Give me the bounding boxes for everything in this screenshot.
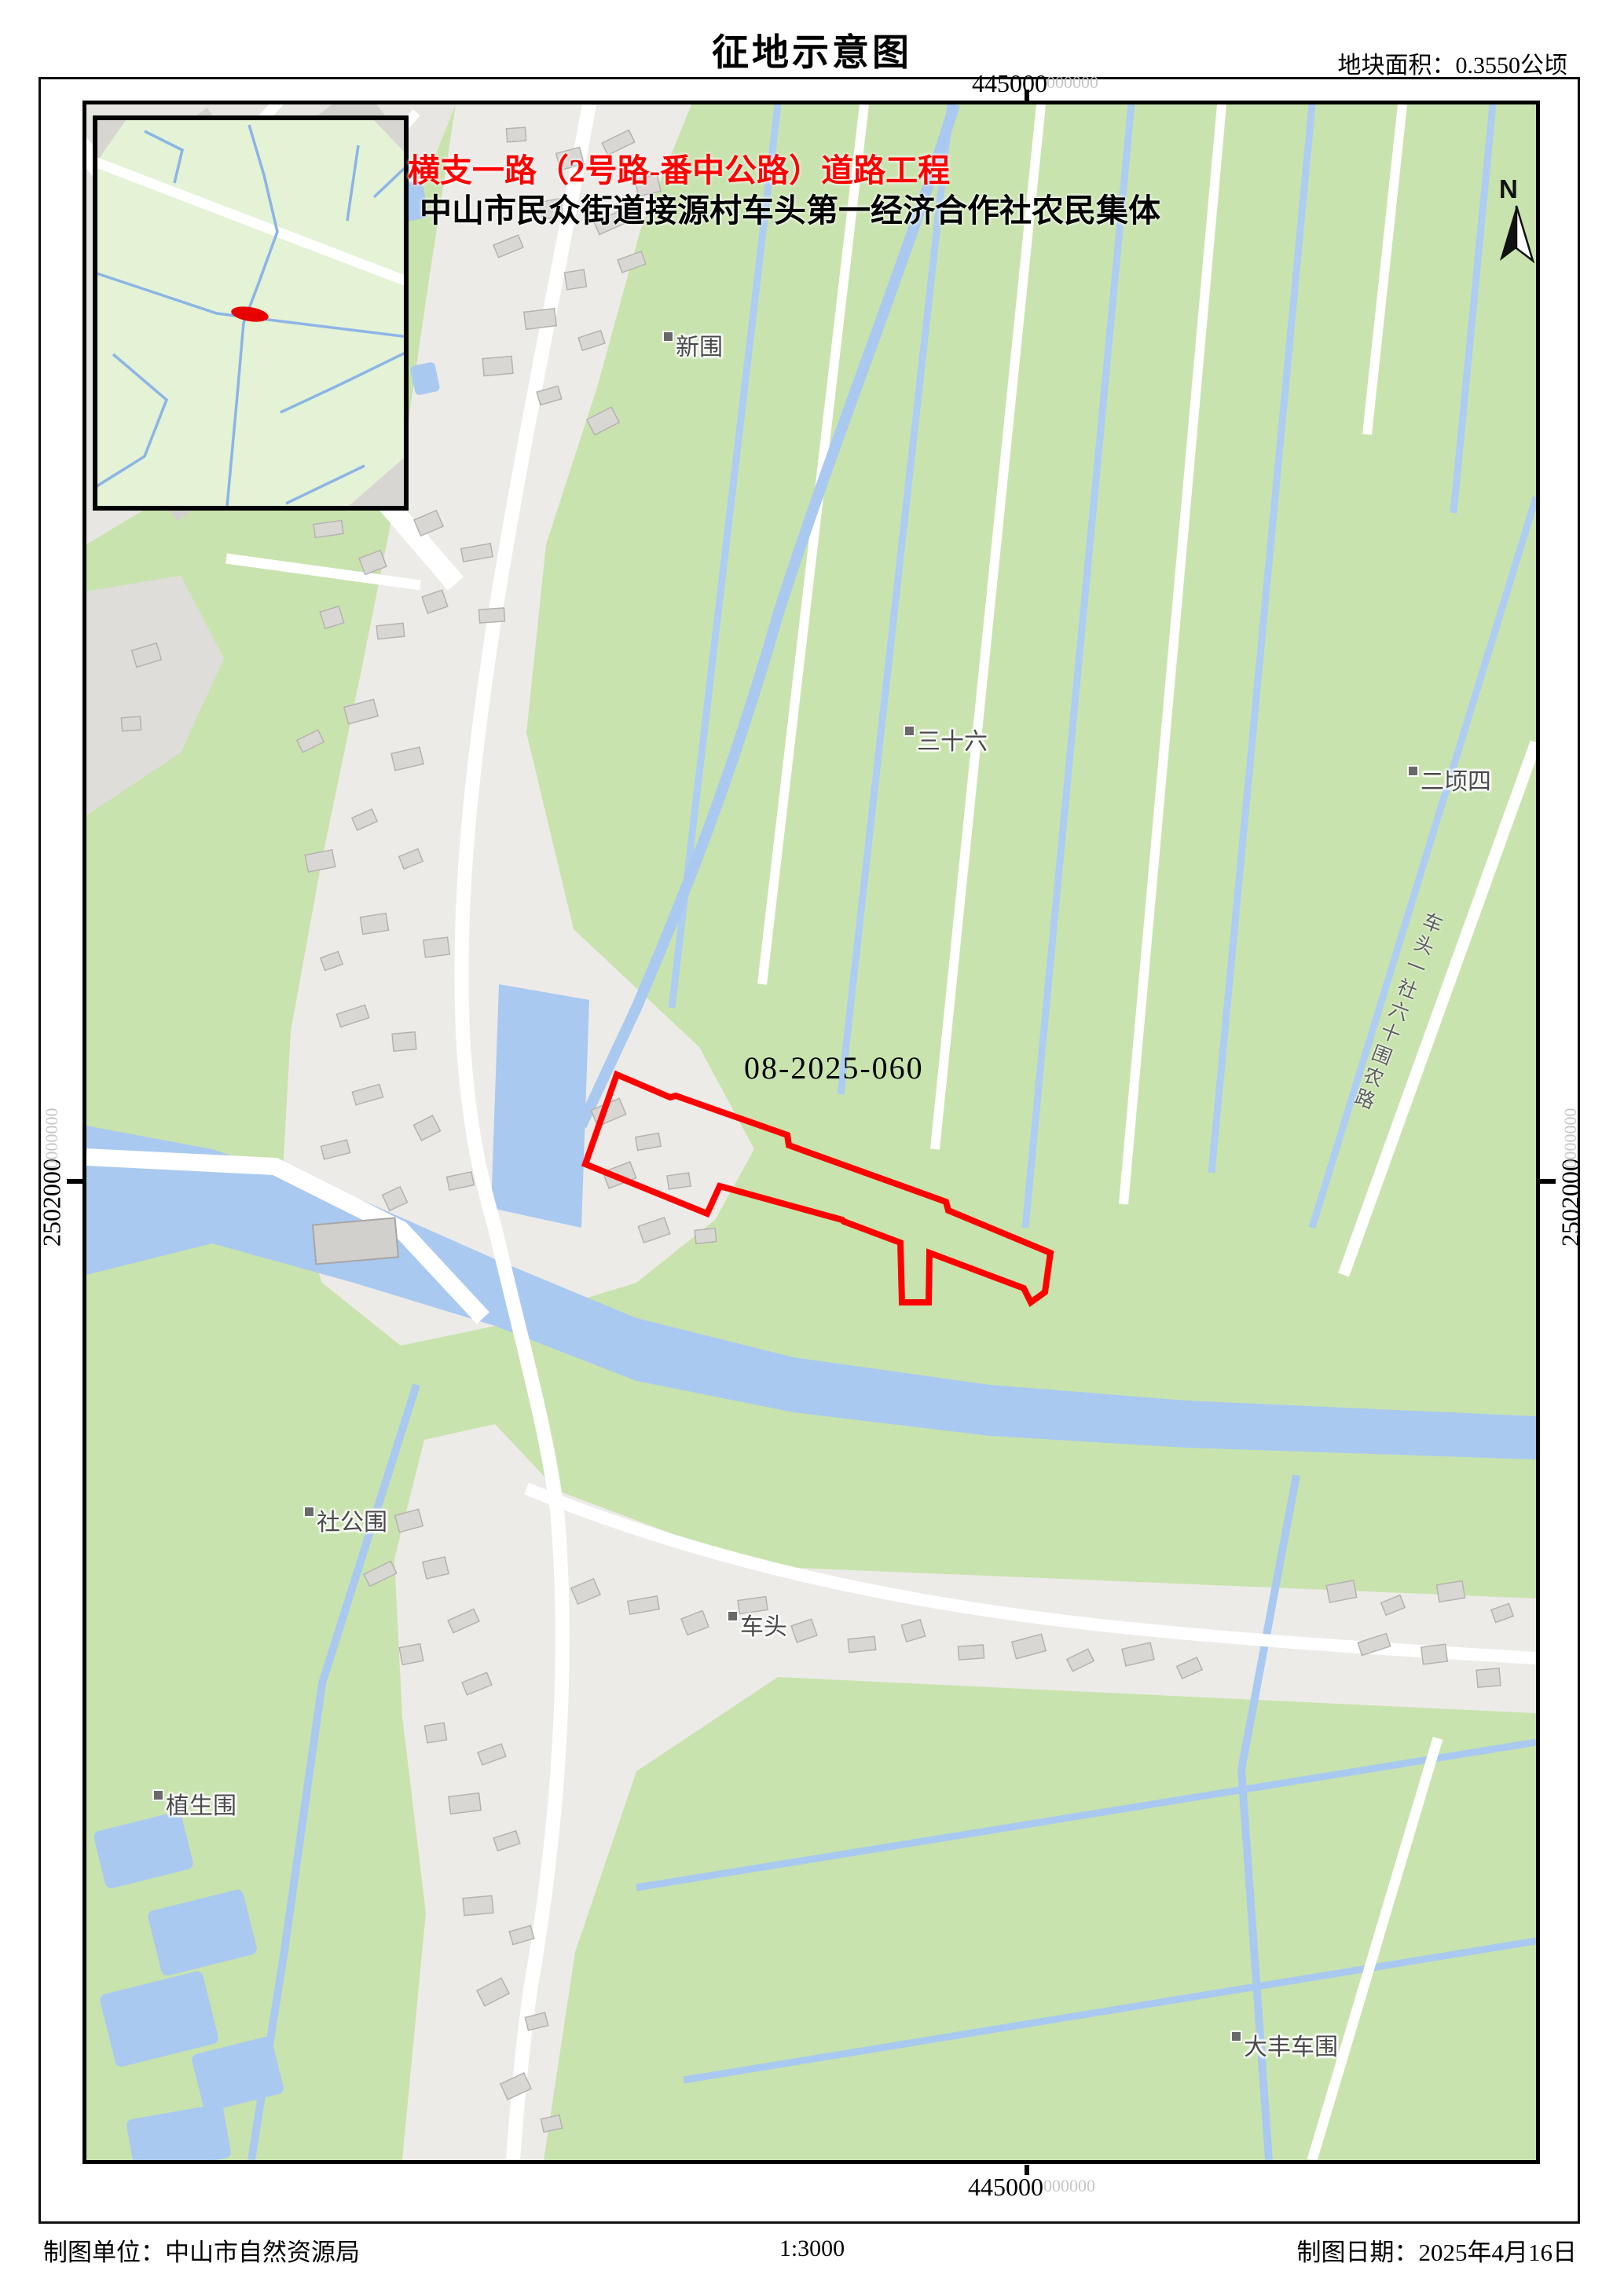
place-marker-icon (905, 727, 914, 735)
place-label-text: 植生围 (166, 1786, 236, 1821)
coord-right-label: 2502000 (1556, 1159, 1586, 1247)
place-label-zhishengwei: 植生围 (154, 1786, 236, 1821)
inset-locator-map (93, 115, 409, 511)
parcel-area-note: 地块面积：0.3550公顷 (1338, 46, 1568, 80)
north-label: N (1499, 174, 1518, 204)
place-label-text: 三十六 (917, 722, 988, 756)
place-label-text: 新围 (676, 328, 723, 362)
coord-tick-right (1540, 1179, 1556, 1184)
canal-pond (491, 984, 589, 1228)
inset-canvas (97, 120, 404, 506)
coord-bottom-sub: 000000 (1043, 2176, 1095, 2196)
place-label-text: 二顷四 (1421, 762, 1491, 796)
large-building (313, 1218, 398, 1264)
coord-top-sub: 000000 (1047, 72, 1098, 93)
coord-left-sub: 0000000 (42, 1108, 62, 1169)
place-label-shegongwei: 社公围 (305, 1503, 387, 1537)
place-label-text: 车头 (740, 1607, 787, 1642)
place-marker-icon (664, 332, 673, 341)
footer-date: 制图日期：2025年4月16日 (1297, 2232, 1578, 2268)
place-marker-icon (1409, 767, 1417, 775)
place-marker-icon (1232, 2032, 1241, 2041)
place-label-xinwei: 新围 (664, 328, 723, 362)
project-subtitle: 中山市民众街道接源村车头第一经济合作社农民集体 (420, 184, 1160, 231)
place-marker-icon (154, 1791, 163, 1800)
place-label-erqingsi: 二顷四 (1409, 762, 1491, 796)
place-label-text: 社公围 (317, 1503, 387, 1537)
coord-tick-left (67, 1179, 82, 1184)
parcel-code-label: 08-2025-060 (744, 1049, 924, 1086)
place-label-chetou: 车头 (728, 1607, 787, 1642)
north-arrow-icon (1491, 203, 1542, 269)
coord-top-label: 445000 (972, 69, 1047, 98)
coord-bottom-label: 445000 (968, 2173, 1043, 2202)
place-label-sanshiliu: 三十六 (905, 722, 988, 756)
coord-left-label: 2502000 (38, 1159, 67, 1247)
place-label-dafengchewei: 大丰车围 (1232, 2027, 1338, 2062)
place-label-text: 大丰车围 (1244, 2027, 1338, 2062)
place-marker-icon (305, 1507, 313, 1516)
coord-right-sub: 0000000 (1560, 1108, 1581, 1169)
place-marker-icon (728, 1612, 737, 1620)
